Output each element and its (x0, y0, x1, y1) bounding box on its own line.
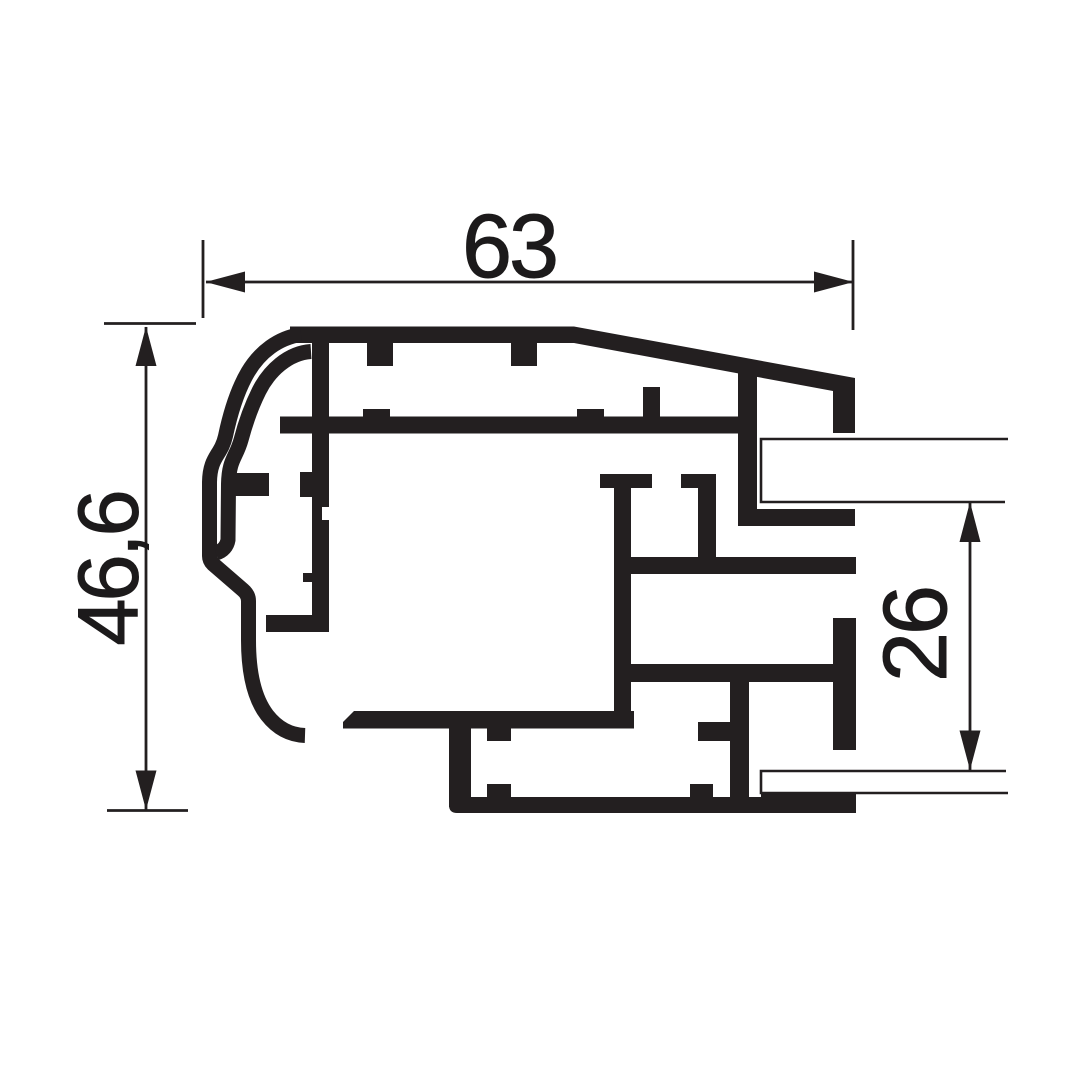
svg-text:46,6: 46,6 (62, 492, 157, 645)
svg-text:63: 63 (462, 197, 556, 297)
svg-text:26: 26 (866, 588, 966, 682)
